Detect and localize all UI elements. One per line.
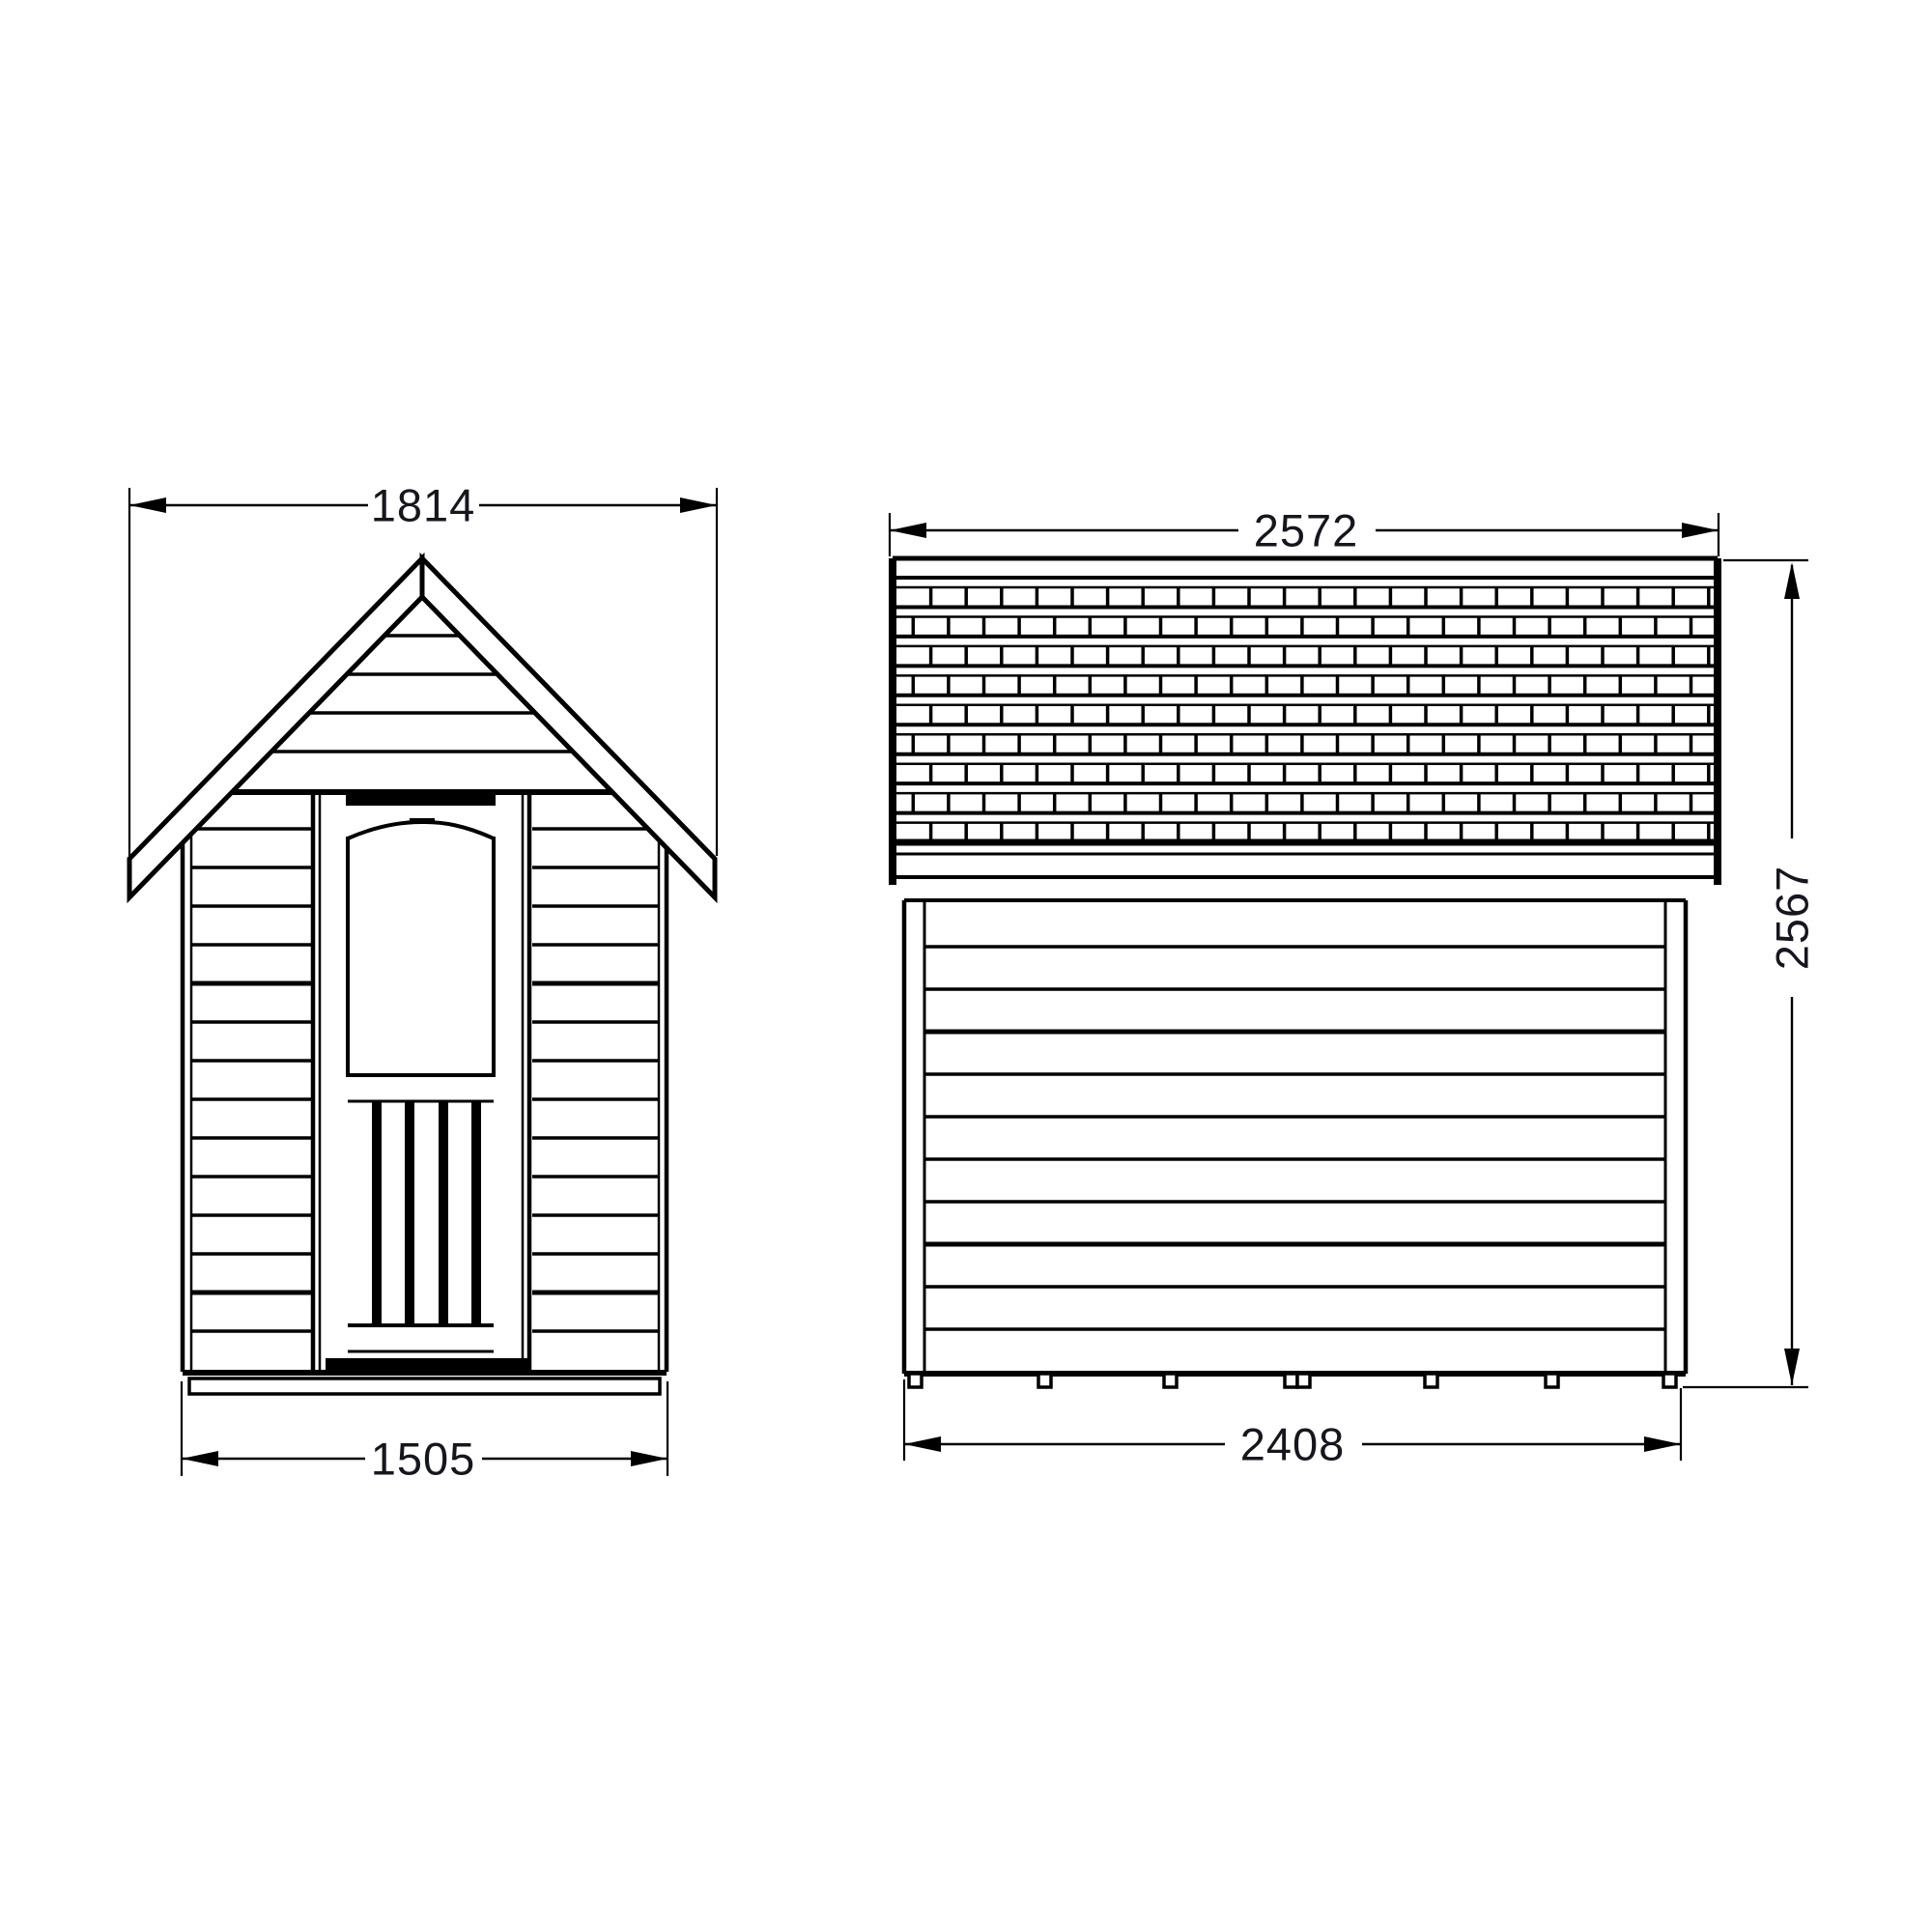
door-plank-gap (372, 1101, 382, 1325)
front-view: 1814 1505 (129, 480, 717, 1485)
dim-label-side-base-depth: 2408 (1240, 1419, 1346, 1470)
shed-foot (1297, 1374, 1310, 1387)
door-lintel (346, 795, 496, 806)
door-plank-gap (471, 1101, 481, 1325)
arrowhead-left (182, 1451, 218, 1466)
side-roof (889, 558, 1721, 885)
shed-foot (909, 1374, 922, 1387)
roof-edge-bar-left (889, 558, 896, 885)
door-plank-gap (439, 1101, 448, 1325)
roof-edge-bar-right (1714, 558, 1721, 885)
arrowhead-right (1644, 1436, 1681, 1452)
door-threshold (326, 1358, 527, 1371)
side-wall (904, 900, 1686, 1387)
arrowhead-up (1784, 562, 1800, 599)
shed-foot (1663, 1374, 1676, 1387)
front-base (183, 1373, 667, 1394)
dim-front-base-width: 1505 (182, 1381, 668, 1485)
shed-foot (1425, 1374, 1437, 1387)
shed-foot (1164, 1374, 1177, 1387)
dim-label-side-overall-depth: 2572 (1254, 505, 1359, 556)
shed-technical-drawing: 1814 1505 (0, 0, 1932, 1932)
dim-side-base-depth: 2408 (904, 1379, 1681, 1470)
shed-foot (1285, 1374, 1297, 1387)
door-window-arch-peak (410, 818, 435, 824)
door-plank-gap (405, 1101, 414, 1325)
door-backing (311, 795, 532, 1372)
shed-foot (1038, 1374, 1051, 1387)
front-door (311, 795, 532, 1372)
dim-label-side-overall-height: 2567 (1767, 866, 1818, 971)
side-wall-cladding (925, 947, 1664, 1329)
side-view: 2572 2408 2567 (889, 505, 1818, 1470)
arrowhead-right (680, 497, 717, 513)
arrowhead-left (890, 523, 926, 538)
arrowhead-left (904, 1436, 941, 1452)
shed-foot (1546, 1374, 1558, 1387)
dim-label-front-overall-width: 1814 (371, 480, 476, 531)
arrowhead-right (1682, 523, 1719, 538)
roof-shingles (895, 578, 1714, 842)
arrowhead-down (1784, 1349, 1800, 1385)
dim-label-front-base-width: 1505 (371, 1434, 476, 1485)
dim-side-overall-height: 2567 (1683, 560, 1818, 1387)
dim-side-overall-depth: 2572 (890, 505, 1719, 557)
drawing-page: 1814 1505 (0, 0, 1932, 1932)
arrowhead-left (129, 497, 166, 513)
arrowhead-right (631, 1451, 668, 1466)
front-base-rail (189, 1378, 660, 1394)
